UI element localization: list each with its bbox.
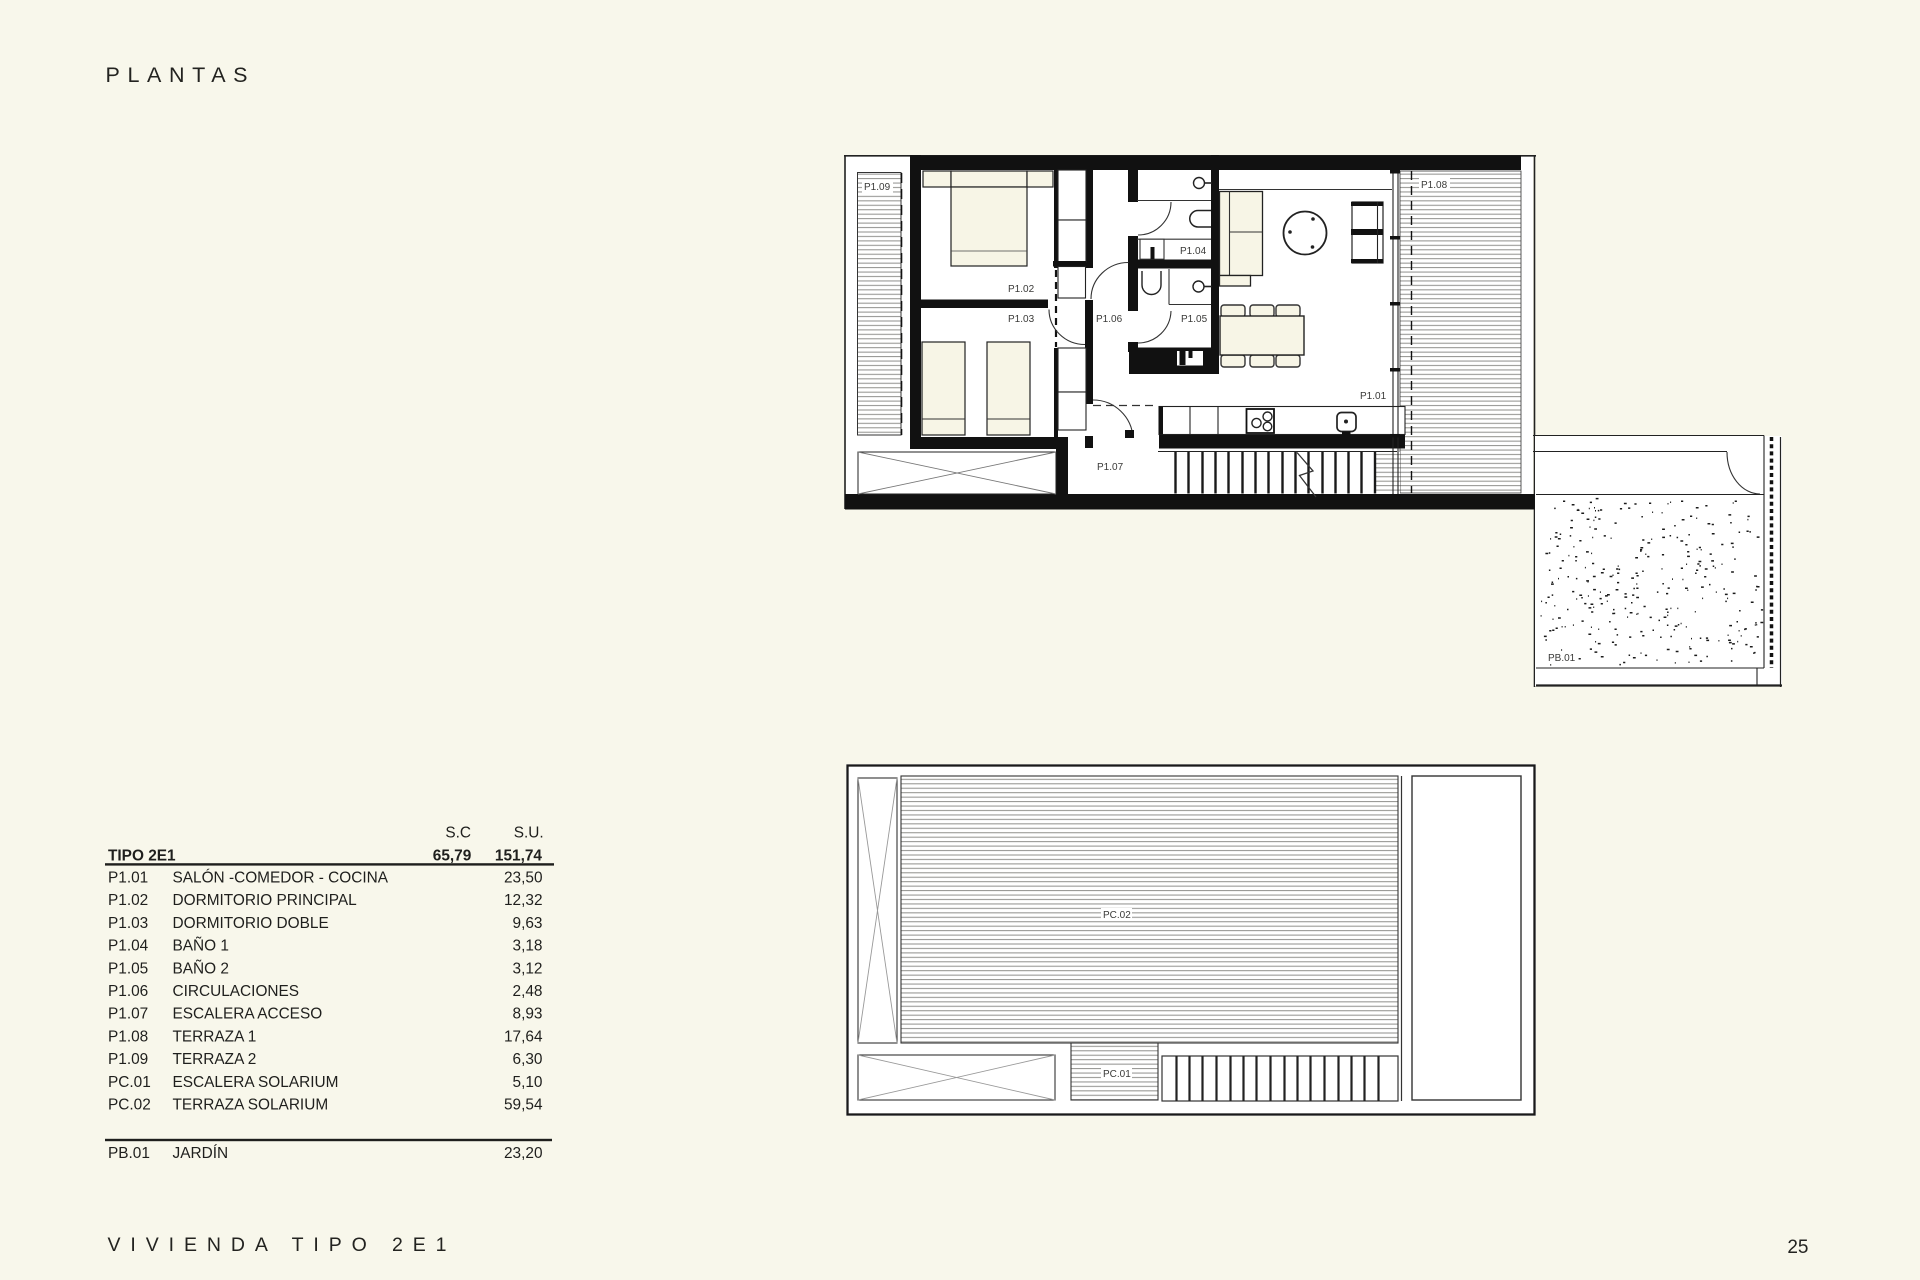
- svg-text:P1.08: P1.08: [108, 1028, 148, 1045]
- svg-text:TERRAZA 1: TERRAZA 1: [173, 1028, 257, 1045]
- svg-text:ESCALERA ACCESO: ESCALERA ACCESO: [173, 1006, 323, 1023]
- svg-text:2,48: 2,48: [513, 983, 543, 1000]
- svg-text:DORMITORIO DOBLE: DORMITORIO DOBLE: [173, 915, 329, 932]
- svg-text:P1.03: P1.03: [108, 915, 148, 932]
- svg-text:P1.04: P1.04: [1180, 246, 1207, 257]
- svg-text:VIVIENDA TIPO 2E1: VIVIENDA TIPO 2E1: [108, 1234, 457, 1256]
- svg-text:P1.04: P1.04: [108, 938, 149, 955]
- svg-text:P1.07: P1.07: [1097, 462, 1124, 473]
- svg-text:12,32: 12,32: [504, 892, 543, 909]
- svg-text:P1.03: P1.03: [1008, 314, 1035, 325]
- svg-text:BAÑO 1: BAÑO 1: [173, 938, 229, 955]
- svg-text:P1.01: P1.01: [1360, 391, 1387, 402]
- svg-text:PC.02: PC.02: [108, 1097, 151, 1114]
- svg-text:P1.02: P1.02: [108, 892, 148, 909]
- svg-text:TERRAZA SOLARIUM: TERRAZA SOLARIUM: [173, 1097, 329, 1114]
- svg-text:9,63: 9,63: [513, 915, 543, 932]
- svg-text:6,30: 6,30: [513, 1051, 543, 1068]
- svg-text:PC.02: PC.02: [1103, 910, 1131, 921]
- svg-text:65,79: 65,79: [433, 848, 472, 865]
- svg-text:P1.08: P1.08: [1421, 180, 1448, 191]
- svg-text:PLANTAS: PLANTAS: [106, 63, 256, 87]
- svg-text:23,50: 23,50: [504, 870, 543, 887]
- svg-text:P1.06: P1.06: [108, 983, 148, 1000]
- svg-text:PC.01: PC.01: [1103, 1069, 1131, 1080]
- svg-text:23,20: 23,20: [504, 1145, 543, 1162]
- svg-text:TIPO 2E1: TIPO 2E1: [108, 848, 176, 865]
- svg-text:DORMITORIO PRINCIPAL: DORMITORIO PRINCIPAL: [173, 892, 358, 909]
- svg-text:ESCALERA SOLARIUM: ESCALERA SOLARIUM: [173, 1074, 339, 1091]
- svg-text:P1.05: P1.05: [1181, 314, 1208, 325]
- svg-text:3,18: 3,18: [513, 938, 543, 955]
- svg-text:59,54: 59,54: [504, 1097, 543, 1114]
- svg-text:P1.07: P1.07: [108, 1006, 148, 1023]
- svg-text:P1.05: P1.05: [108, 960, 148, 977]
- svg-text:5,10: 5,10: [513, 1074, 543, 1091]
- svg-text:S.U.: S.U.: [514, 825, 544, 842]
- svg-text:3,12: 3,12: [513, 960, 543, 977]
- svg-text:8,93: 8,93: [513, 1006, 543, 1023]
- svg-text:17,64: 17,64: [504, 1028, 543, 1045]
- svg-text:151,74: 151,74: [495, 848, 543, 865]
- svg-text:PC.01: PC.01: [108, 1074, 151, 1091]
- svg-text:CIRCULACIONES: CIRCULACIONES: [173, 983, 300, 1000]
- svg-text:JARDÍN: JARDÍN: [173, 1145, 229, 1162]
- svg-text:25: 25: [1787, 1237, 1808, 1258]
- svg-text:P1.01: P1.01: [108, 870, 148, 887]
- svg-text:PB.01: PB.01: [108, 1145, 150, 1162]
- svg-text:P1.09: P1.09: [108, 1051, 148, 1068]
- svg-text:P1.02: P1.02: [1008, 284, 1035, 295]
- svg-text:S.C: S.C: [445, 825, 471, 842]
- svg-text:TERRAZA 2: TERRAZA 2: [173, 1051, 257, 1068]
- svg-text:P1.06: P1.06: [1096, 314, 1123, 325]
- svg-text:BAÑO 2: BAÑO 2: [173, 960, 229, 977]
- svg-text:SALÓN -COMEDOR - COCINA: SALÓN -COMEDOR - COCINA: [173, 870, 389, 887]
- svg-text:PB.01: PB.01: [1548, 653, 1576, 664]
- svg-text:P1.09: P1.09: [864, 182, 891, 193]
